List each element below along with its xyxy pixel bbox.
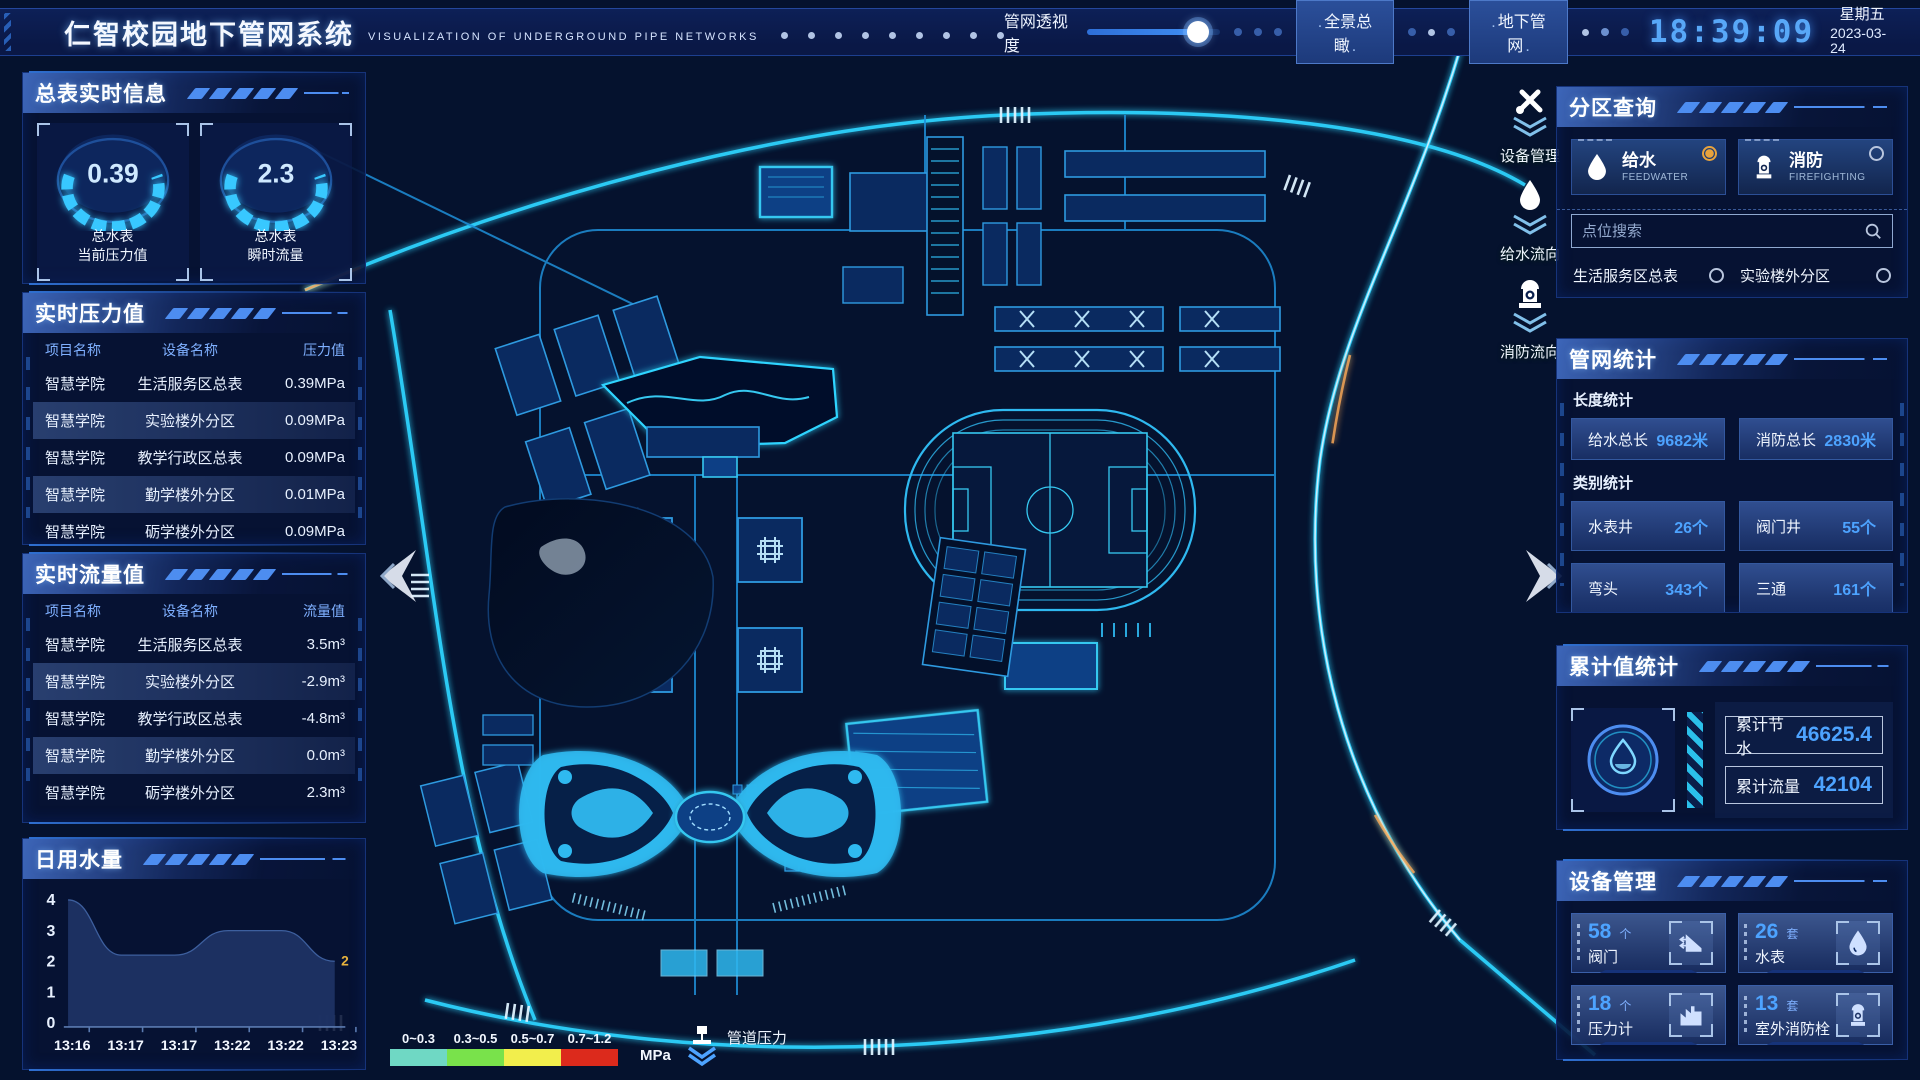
table-row: 智慧学院实验楼外分区0.09MPa <box>33 402 355 439</box>
panel-title: 分区查询 <box>1569 92 1657 122</box>
page-title: 仁智校园地下管网系统 <box>64 13 354 52</box>
realtime-pressure-panel: 实时压力值 项目名称 设备名称 压力值 智慧学院生活服务区总表0.39MPa 智… <box>22 292 366 545</box>
legend-label: 管道压力 <box>727 1027 787 1048</box>
hydrant-icon <box>1508 276 1552 334</box>
title-slashes <box>169 569 272 580</box>
search-input[interactable] <box>1582 223 1864 240</box>
device-management-panel: 设备管理 58个 阀门 26套 水表 18个 压力计 13套 室外消防 <box>1556 860 1908 1060</box>
top-bar: 仁智校园地下管网系统 VISUALIZATION OF UNDERGROUND … <box>0 8 1920 56</box>
tab-radio[interactable] <box>1869 146 1884 161</box>
panel-title: 设备管理 <box>1569 866 1657 896</box>
underground-pipes-button[interactable]: 地下管网 <box>1469 0 1568 64</box>
device-card-valves[interactable]: 58个 阀门 <box>1571 913 1726 973</box>
zone-query-panel: 分区查询 给水FEEDWATER 消防FIREFIGHTING 生活服务区总表 … <box>1556 86 1908 298</box>
legend-segment: 0.3~0.5 <box>447 1031 504 1066</box>
zone-radio[interactable] <box>1876 268 1891 283</box>
svg-text:3: 3 <box>47 923 56 940</box>
stat-tile: 消防总长2830米 <box>1739 418 1893 460</box>
wrench-icon <box>1508 80 1552 138</box>
header-dots <box>781 32 1004 39</box>
hydrant-icon <box>1751 152 1777 182</box>
water-saving-icon-box <box>1571 708 1675 812</box>
separator-dots <box>1582 28 1629 36</box>
cumulative-saving-row: 累计节水46625.4 <box>1725 716 1883 754</box>
tab-feedwater[interactable]: 给水FEEDWATER <box>1571 139 1726 195</box>
stat-tile: 弯头343个 <box>1571 563 1725 613</box>
title-slashes <box>1681 102 1784 113</box>
svg-text:1: 1 <box>47 984 56 1001</box>
svg-text:4: 4 <box>47 892 56 909</box>
hatch-divider <box>1687 712 1703 808</box>
svg-text:13:16: 13:16 <box>54 1038 91 1054</box>
pipe-stats-panel: 管网统计 长度统计 给水总长9682米 消防总长2830米 类别统计 水表井26… <box>1556 338 1908 613</box>
svg-text:2.3: 2.3 <box>257 159 294 189</box>
panel-title: 日用水量 <box>35 844 123 874</box>
pipe-opacity-label: 管网透视度 <box>1004 8 1075 56</box>
pressure-table: 项目名称 设备名称 压力值 智慧学院生活服务区总表0.39MPa 智慧学院实验楼… <box>23 333 365 541</box>
legend-segment: 0.5~0.7 <box>504 1031 561 1066</box>
svg-text:0.39: 0.39 <box>87 159 138 189</box>
panel-title: 累计值统计 <box>1569 651 1679 681</box>
waterdrop-icon <box>1584 152 1610 182</box>
cumulative-flow-row: 累计流量42104 <box>1725 766 1883 804</box>
zone-item[interactable]: 教学行政区总表 <box>1573 294 1724 298</box>
daily-water-panel: 日用水量 0123413:1613:1713:1713:2213:2213:23… <box>22 838 366 1070</box>
table-row: 智慧学院教学行政区总表-4.8m³ <box>33 700 355 737</box>
flow-gauge-card: 2.3 总水表 瞬时流量 <box>200 123 352 281</box>
svg-text:13:22: 13:22 <box>267 1038 304 1054</box>
table-row: 智慧学院生活服务区总表0.39MPa <box>33 365 355 402</box>
legend-segment: 0~0.3 <box>390 1031 447 1066</box>
prev-view-arrow[interactable] <box>372 548 424 609</box>
title-slashes <box>1703 661 1806 672</box>
valve-icon <box>1677 929 1705 957</box>
svg-text:13:22: 13:22 <box>214 1038 251 1054</box>
table-row: 智慧学院生活服务区总表3.5m³ <box>33 626 355 663</box>
zone-item[interactable]: 生活服务区总表 <box>1573 256 1724 294</box>
realtime-flow-panel: 实时流量值 项目名称 设备名称 流量值 智慧学院生活服务区总表3.5m³ 智慧学… <box>22 553 366 823</box>
pipe-opacity-slider[interactable] <box>1087 29 1220 35</box>
svg-text:0: 0 <box>47 1015 56 1032</box>
cumulative-stats-panel: 累计值统计 累计节水46625.4 累计流量42104 <box>1556 645 1908 830</box>
page-subtitle: VISUALIZATION OF UNDERGROUND PIPE NETWOR… <box>368 31 759 43</box>
title-slashes <box>191 88 294 99</box>
stat-tile: 水表井26个 <box>1571 501 1725 551</box>
legend-unit: MPa <box>640 1047 671 1064</box>
zone-item[interactable]: 勤学楼外分区 <box>1740 294 1891 298</box>
table-row: 智慧学院砺学楼外分区2.3m³ <box>33 774 355 811</box>
clock: 18:39:09 <box>1649 14 1814 50</box>
title-slashes <box>1681 354 1784 365</box>
separator-dots <box>1234 28 1282 36</box>
title-slashes <box>1681 876 1784 887</box>
pressure-gauge-icon <box>1677 1001 1705 1029</box>
panel-title: 总表实时信息 <box>35 78 167 108</box>
gauge-dial: 0.39 <box>43 123 183 231</box>
meter-realtime-panel: 总表实时信息 0.39 总水表 当前压力值 2.3 总水表 <box>22 72 366 284</box>
table-row: 智慧学院勤学楼外分区0.0m³ <box>33 737 355 774</box>
legend-segment: 0.7~1.2 <box>561 1031 618 1066</box>
device-card-pressure-gauges[interactable]: 18个 压力计 <box>1571 985 1726 1045</box>
gauge-dial: 2.3 <box>206 123 346 231</box>
waterdrop-icon <box>1585 722 1661 798</box>
svg-text:2: 2 <box>341 954 349 969</box>
daily-water-chart: 0123413:1613:1713:1713:2213:2213:232 <box>29 883 359 1065</box>
waterdrop-icon <box>1508 178 1552 236</box>
pressure-gauge-card: 0.39 总水表 当前压力值 <box>37 123 189 281</box>
panel-title: 管网统计 <box>1569 344 1657 374</box>
table-row: 智慧学院砺学楼外分区0.09MPa <box>33 513 355 541</box>
slider-handle[interactable] <box>1187 21 1209 43</box>
stat-tile: 阀门井55个 <box>1739 501 1893 551</box>
zone-list: 生活服务区总表 实验楼外分区 教学行政区总表 勤学楼外分区 砺学楼外分区 宿舍区… <box>1557 256 1907 298</box>
date: 2023-03-24 <box>1830 26 1894 57</box>
table-row: 智慧学院教学行政区总表0.09MPa <box>33 439 355 476</box>
stat-tile: 给水总长9682米 <box>1571 418 1725 460</box>
tab-radio[interactable] <box>1702 146 1717 161</box>
length-stats-label: 长度统计 <box>1573 389 1891 410</box>
category-stats-label: 类别统计 <box>1573 472 1891 493</box>
weekday: 星期五 <box>1840 7 1885 24</box>
table-header: 项目名称 设备名称 压力值 <box>33 335 355 365</box>
device-card-water-meters[interactable]: 26套 水表 <box>1738 913 1893 973</box>
water-meter-icon <box>1844 929 1872 957</box>
slider-fill <box>1087 29 1199 35</box>
title-slashes <box>169 308 272 319</box>
overview-button[interactable]: 全景总瞰 <box>1296 0 1395 64</box>
zone-item[interactable]: 实验楼外分区 <box>1740 256 1891 294</box>
svg-text:2: 2 <box>47 954 56 971</box>
dashboard: 仁智校园地下管网系统 VISUALIZATION OF UNDERGROUND … <box>0 0 1920 1080</box>
stat-tile: 三通161个 <box>1739 563 1893 613</box>
panel-title: 实时流量值 <box>35 559 145 589</box>
gauge-label: 总水表 当前压力值 <box>78 227 148 265</box>
pipe-pressure-legend: 0~0.3 0.3~0.5 0.5~0.7 0.7~1.2 MPa 管道压力 <box>390 1022 787 1066</box>
svg-text:13:17: 13:17 <box>107 1038 144 1054</box>
table-header: 项目名称 设备名称 流量值 <box>33 596 355 626</box>
separator-dots <box>1408 28 1455 36</box>
title-slashes <box>147 854 250 865</box>
search-icon[interactable] <box>1864 222 1882 240</box>
pipe-pressure-icon <box>685 1022 719 1066</box>
hydrant-icon <box>1844 1001 1872 1029</box>
panel-title: 实时压力值 <box>35 298 145 328</box>
device-card-outdoor-hydrants[interactable]: 13套 室外消防栓 <box>1738 985 1893 1045</box>
flow-table: 项目名称 设备名称 流量值 智慧学院生活服务区总表3.5m³ 智慧学院实验楼外分… <box>23 594 365 819</box>
table-row: 智慧学院实验楼外分区-2.9m³ <box>33 663 355 700</box>
table-row: 智慧学院勤学楼外分区0.01MPa <box>33 476 355 513</box>
search-box <box>1571 214 1893 248</box>
svg-text:13:23: 13:23 <box>321 1038 358 1054</box>
tab-firefighting[interactable]: 消防FIREFIGHTING <box>1738 139 1893 195</box>
gauge-label: 总水表 瞬时流量 <box>248 227 304 265</box>
svg-text:13:17: 13:17 <box>161 1038 198 1054</box>
zone-radio[interactable] <box>1709 268 1724 283</box>
